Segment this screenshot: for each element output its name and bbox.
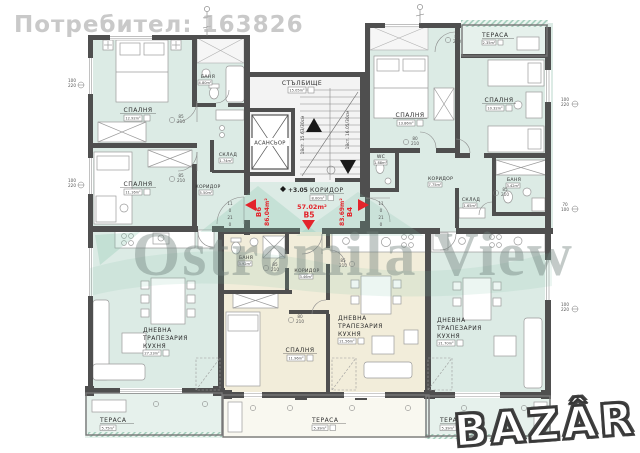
room-area: 15.05m² <box>289 89 305 93</box>
svg-text:210: 210 <box>411 141 419 146</box>
room-area: 21.70m² <box>438 342 454 346</box>
room-name: БАНЯ <box>201 74 215 80</box>
room-name: СТЪЛБИЩЕ <box>282 80 322 87</box>
window-tag: 100 220 <box>68 78 84 88</box>
room-name: КУХНЯ <box>437 333 460 340</box>
step-number: 11 <box>227 201 233 206</box>
room-name: ДНЕВНА <box>143 327 172 334</box>
room-name: ДНЕВНА <box>338 315 367 322</box>
room-area: 21.56m² <box>339 340 355 344</box>
room-name: ДНЕВНА <box>437 317 466 324</box>
room-area: 5.75m² <box>102 426 116 430</box>
label-b4-bath: БАНЯ 3.42m² <box>506 177 521 188</box>
window-tag: 100 220 <box>68 178 84 188</box>
svg-text:210: 210 <box>501 192 509 197</box>
room-name: КОРИДОР <box>428 176 453 182</box>
svg-text:220: 220 <box>68 183 76 188</box>
label-elevator: АСАНСЬОР <box>251 138 289 147</box>
room-area: 13.86m² <box>398 122 414 126</box>
room-area: 3.42m² <box>507 184 521 188</box>
user-watermark: Потребител: 163826 <box>14 12 304 38</box>
room-name: АСАНСЬОР <box>254 141 285 147</box>
room-area: 5.50m² <box>200 191 214 195</box>
svg-text:210: 210 <box>177 178 185 183</box>
room-name: СПАЛНЯ <box>124 107 153 114</box>
svg-text:220: 220 <box>68 83 76 88</box>
window-tag: 100 220 <box>561 302 578 312</box>
room-name: БАНЯ <box>507 177 521 183</box>
room-name: СПАЛНЯ <box>396 112 425 119</box>
elevation-label: +3.05 <box>288 187 308 194</box>
room-name: ТЕРАСА <box>481 32 509 39</box>
room-name: СКЛАД <box>462 197 480 203</box>
step-number: 0 <box>229 208 232 213</box>
svg-text:220: 220 <box>561 102 569 107</box>
window-tag: 70 100 <box>561 202 578 212</box>
stair-note-right: 18ст. 16.05/30см <box>345 111 351 150</box>
room-name: КУХНЯ <box>143 343 166 350</box>
room-area: 7.75m² <box>429 183 443 187</box>
apartment-id: В4 <box>346 207 354 217</box>
window-tag: 100 220 <box>561 97 578 107</box>
room-area: 10.32m² <box>487 107 503 111</box>
svg-text:210: 210 <box>177 119 185 124</box>
room-name: КУХНЯ <box>338 331 361 338</box>
svg-text:210: 210 <box>296 319 304 324</box>
room-name: ТРАПЕЗАРИЯ <box>436 325 482 332</box>
room-area: 27.23m² <box>144 352 160 356</box>
room-name: WC <box>377 154 385 160</box>
room-area: 5.39m² <box>314 426 328 430</box>
room-area: 11.96m² <box>288 357 304 361</box>
room-area: 11.16m² <box>125 191 141 195</box>
apartment-id: В5 <box>303 211 314 220</box>
stair-note-left: 18ст. 15.63/30см <box>300 116 306 155</box>
svg-text:220: 220 <box>561 307 569 312</box>
step-number: 0 <box>380 208 383 213</box>
room-name: ТЕРАСА <box>311 417 339 424</box>
step-number: 11 <box>378 201 384 206</box>
svg-text:240: 240 <box>453 39 461 44</box>
room-name: ТРАПЕЗАРИЯ <box>337 323 383 330</box>
room-name: ТРАПЕЗАРИЯ <box>142 335 188 342</box>
room-name: СПАЛНЯ <box>124 181 153 188</box>
room-name: СПАЛНЯ <box>485 97 514 104</box>
room-area: 2.35m² <box>483 41 497 45</box>
room-area: 8.00m² <box>312 196 326 200</box>
agency-watermark: Ostromila View <box>132 220 574 291</box>
floorplan-image: СПАЛНЯ 12.92m² СПАЛНЯ 11.16m² БАНЯ 4.80m… <box>0 0 640 453</box>
apartment-id: В6 <box>255 207 263 217</box>
svg-text:100: 100 <box>561 207 569 212</box>
room-area: 1.88m² <box>374 161 388 165</box>
room-area: 1.74m² <box>220 159 234 163</box>
room-area: 4.80m² <box>199 81 213 85</box>
room-area: 12.92m² <box>125 117 141 121</box>
room-area: 1.65m² <box>464 204 478 208</box>
room-name: КОРИДОР <box>310 187 344 194</box>
room-name: КОРИДОР <box>195 184 220 190</box>
room-name: СКЛАД <box>219 152 237 158</box>
room-name: СПАЛНЯ <box>286 347 315 354</box>
room-name: ТЕРАСА <box>99 417 127 424</box>
